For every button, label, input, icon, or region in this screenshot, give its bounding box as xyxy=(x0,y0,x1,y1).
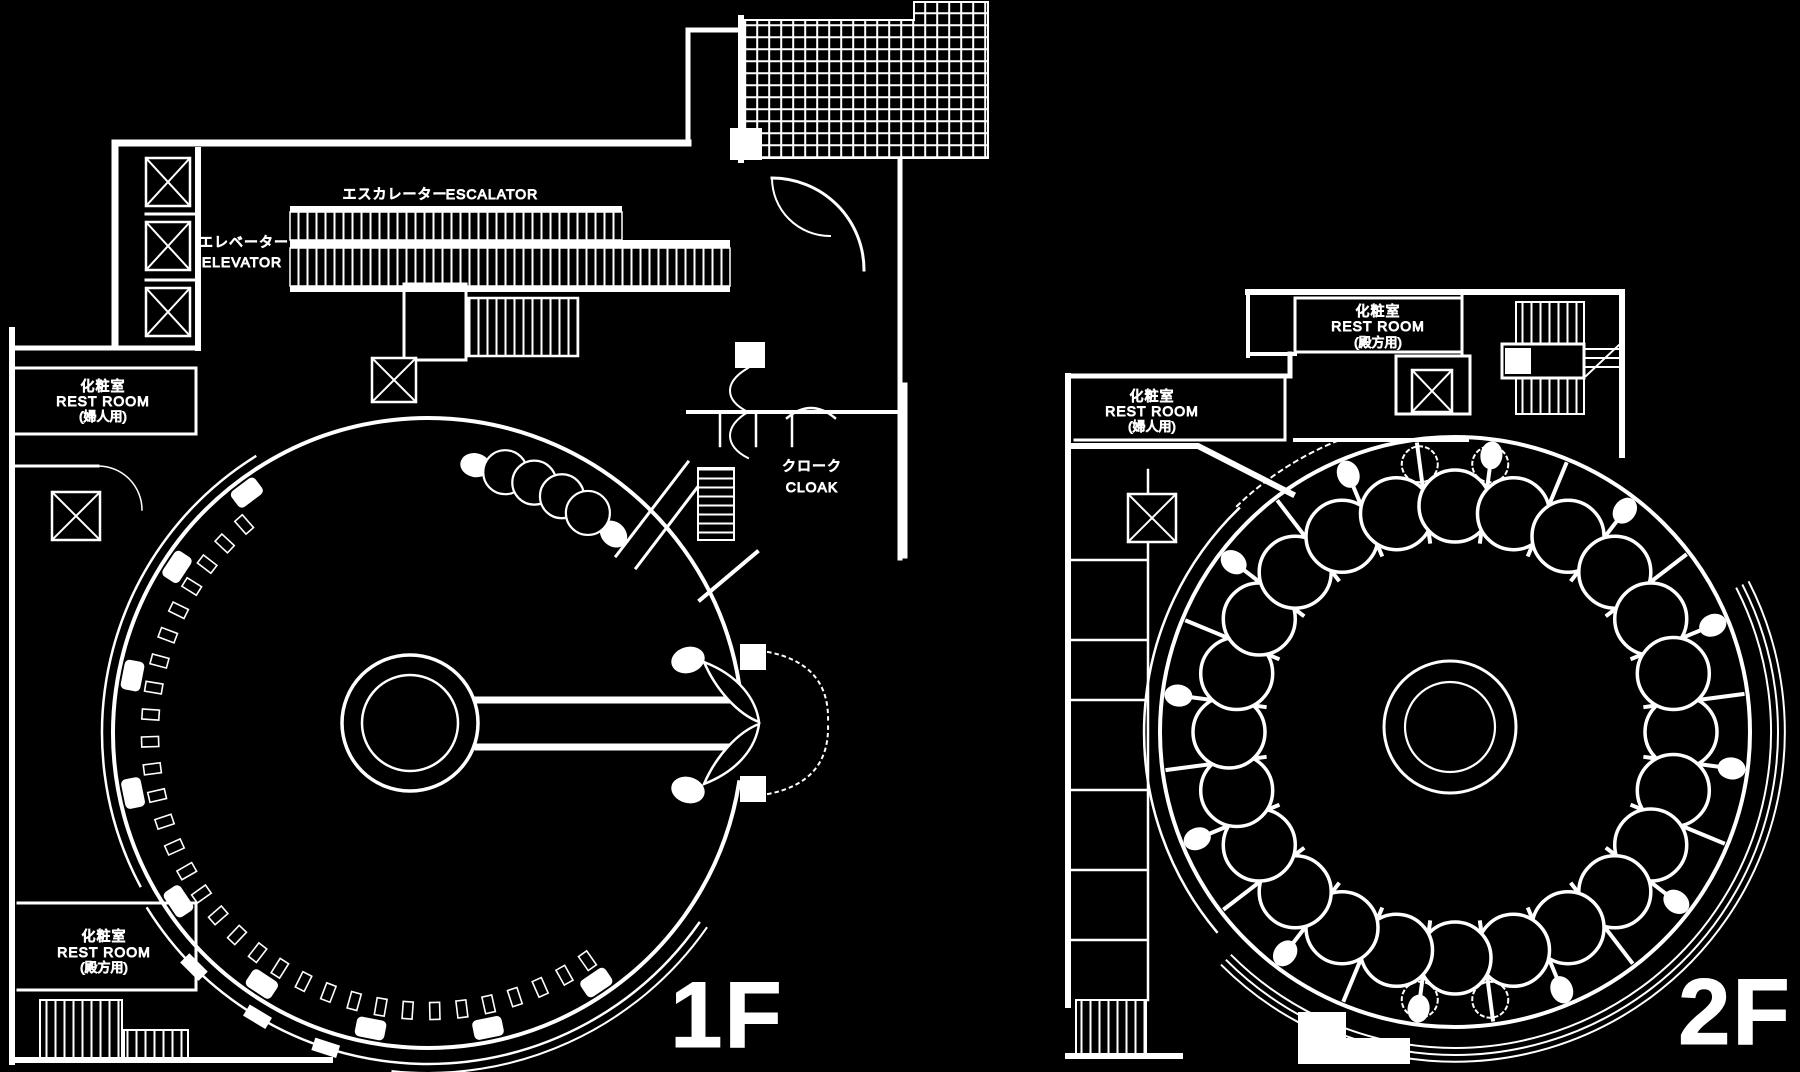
stairs-icon xyxy=(124,1030,188,1058)
restroom-men-en: REST ROOM xyxy=(57,944,151,960)
floor-label-2f: 2F xyxy=(1678,959,1792,1064)
elevator-icon xyxy=(146,158,190,206)
escalator-label-en: ESCALATOR xyxy=(446,186,539,202)
elevator-icon xyxy=(52,492,100,540)
restroom-men-jp: 化粧室 xyxy=(1356,303,1401,319)
restroom-women-jp: 化粧室 xyxy=(1130,388,1175,404)
restroom-women-en: REST ROOM xyxy=(56,393,150,409)
elevator-icon xyxy=(372,358,416,402)
cloak-label-en: CLOAK xyxy=(786,479,838,495)
floor-label-1f: 1F xyxy=(670,962,784,1067)
elevator-icon xyxy=(1128,494,1176,542)
restroom-women-note: (婦人用) xyxy=(79,409,127,424)
restroom-men-note: (殿方用) xyxy=(1354,335,1402,350)
restroom-women-jp: 化粧室 xyxy=(81,378,126,394)
restroom-women-note: (婦人用) xyxy=(1128,419,1176,434)
floor-plan-sheet: エスカレーター ESCALATOR エレベーター ELEVATOR 化粧室 RE… xyxy=(0,0,1800,1072)
escalator-label-jp: エスカレーター xyxy=(343,186,448,202)
grid-terrace xyxy=(744,2,988,158)
wall-block xyxy=(730,128,762,160)
restroom-men-jp: 化粧室 xyxy=(82,928,127,944)
elevator-label-en: ELEVATOR xyxy=(202,254,282,270)
restroom-men-note: (殿方用) xyxy=(80,960,128,975)
elevator-label-jp: エレベーター xyxy=(199,234,289,250)
restroom-men-en: REST ROOM xyxy=(1331,318,1425,334)
door-frame xyxy=(735,342,765,368)
restroom-women-en: REST ROOM xyxy=(1105,403,1199,419)
stairs-icon xyxy=(40,1000,122,1058)
stairs-icon xyxy=(698,468,734,540)
elevator-icon xyxy=(146,222,190,270)
elevator-icon xyxy=(1412,370,1452,412)
stairs-icon xyxy=(468,298,578,356)
stairs-icon xyxy=(1076,1000,1146,1056)
elevator-icon xyxy=(146,288,190,336)
cloak-label-jp: クローク xyxy=(782,458,842,474)
